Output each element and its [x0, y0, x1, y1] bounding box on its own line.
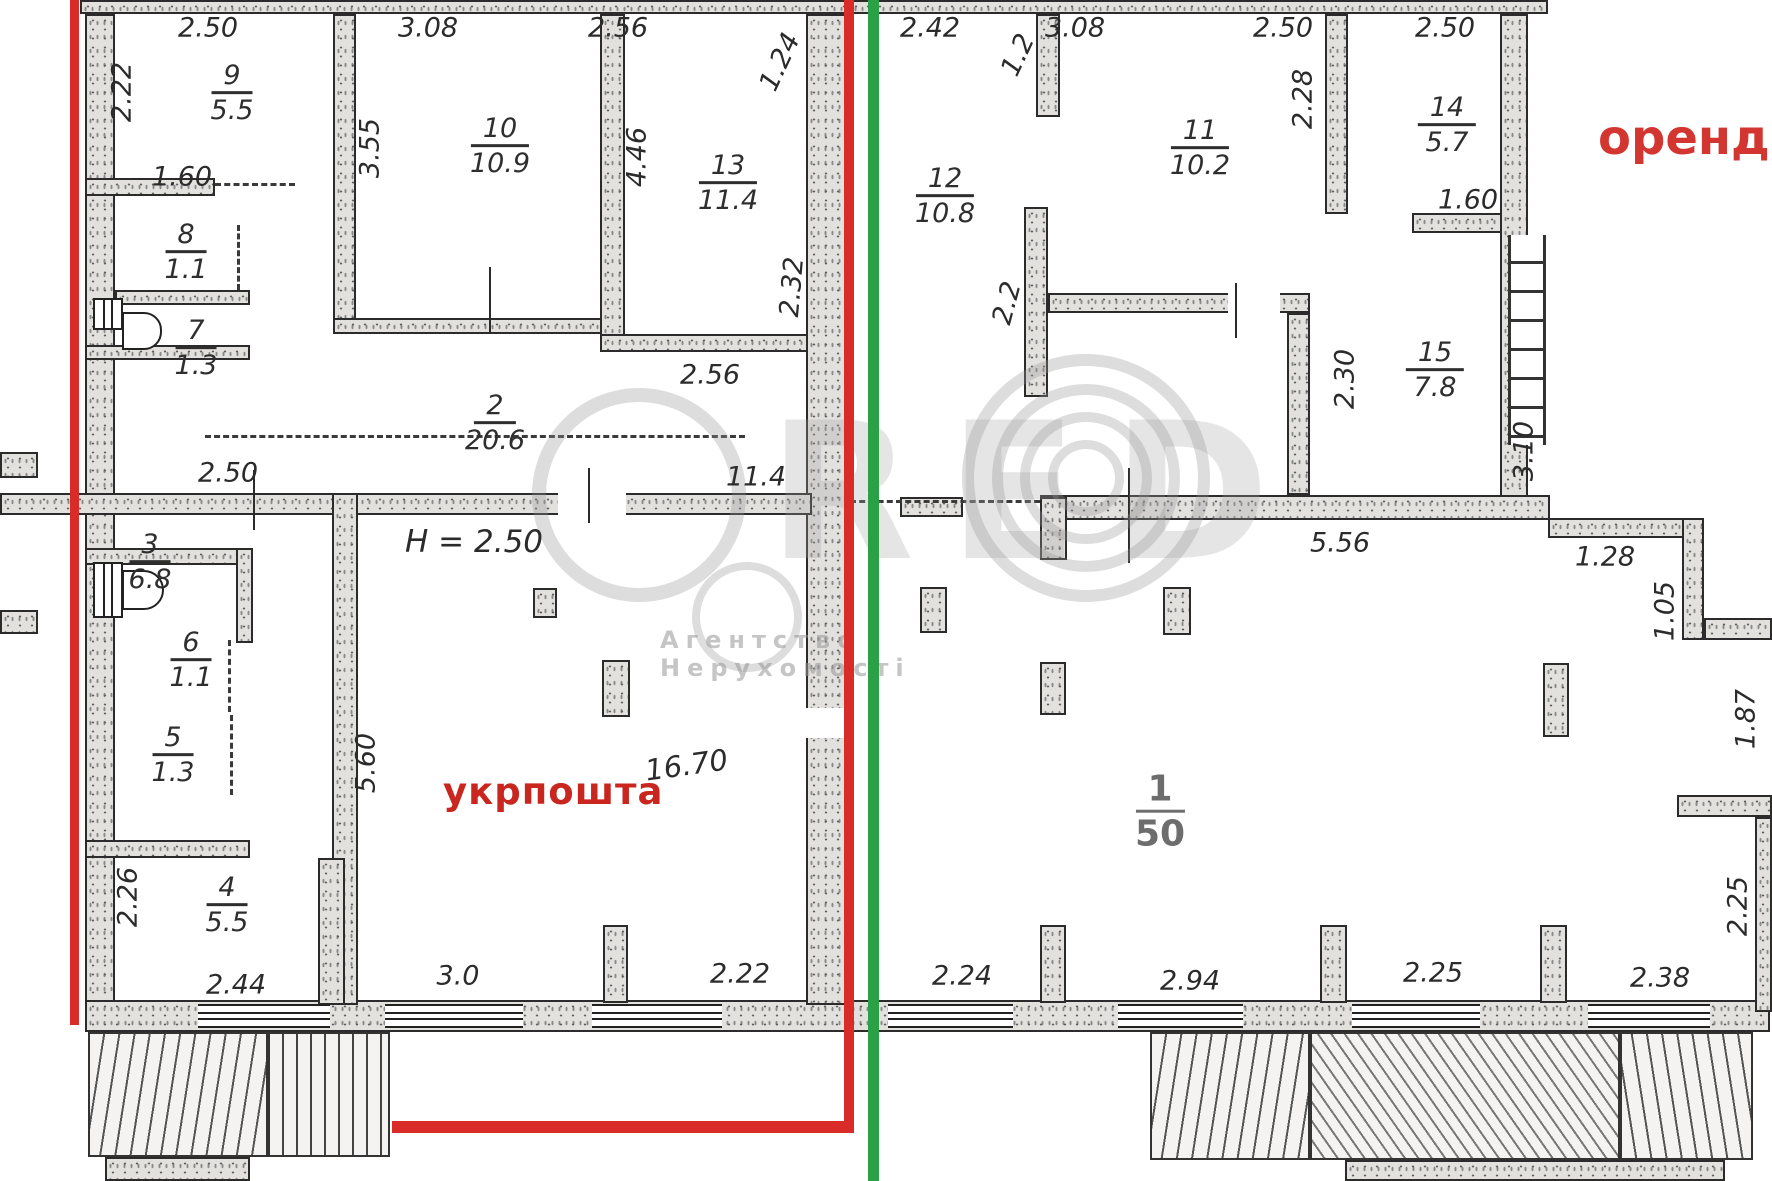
dimension-label: 1.24	[753, 28, 807, 96]
room-area: 10.9	[470, 148, 530, 179]
dashed-opening	[230, 715, 233, 795]
room-number: 5	[152, 724, 193, 756]
dimension-label: 5.56	[1310, 528, 1370, 559]
room-number: 11	[1171, 117, 1229, 149]
red-boundary-line-center	[844, 0, 854, 1133]
room-number: 7	[175, 317, 216, 349]
dimension-label: 2.42	[900, 13, 960, 44]
wall	[533, 588, 557, 618]
dimension-label: 2.2	[986, 278, 1027, 328]
wall	[1543, 663, 1569, 737]
watermark-o-ring	[992, 384, 1180, 572]
dashed-opening	[228, 640, 231, 712]
room-label: 45.5	[206, 872, 249, 938]
room-number: 15	[1406, 339, 1464, 371]
dimension-label: 2.32	[774, 256, 810, 319]
dashed-opening	[215, 183, 295, 186]
dimension-label: 3.55	[355, 118, 386, 178]
dimension-label: 5.60	[351, 733, 382, 793]
wall	[1040, 495, 1550, 520]
wall	[1287, 313, 1310, 495]
wall	[806, 14, 846, 1005]
window	[592, 1004, 722, 1028]
wall	[115, 290, 250, 305]
door-opening	[558, 493, 626, 515]
stairs-right-fan	[1150, 1032, 1310, 1160]
wall	[0, 452, 38, 478]
room-label: 61.1	[170, 627, 213, 693]
porch-ramp	[1310, 1032, 1620, 1160]
room-number: 10	[471, 115, 529, 147]
ukrposhta-label: укрпошта	[443, 770, 663, 813]
dimension-label: 2.50	[178, 13, 238, 44]
room-number: 1	[1135, 771, 1184, 813]
dimension-label: 11.4	[726, 462, 786, 493]
dimension-label: 2.56	[680, 360, 740, 391]
dimension-tick	[1235, 283, 1237, 338]
wall	[85, 345, 250, 360]
room-label: 36.8	[129, 529, 172, 595]
dimension-label: 2.38	[1630, 963, 1690, 994]
room-label: 1010.9	[470, 113, 530, 179]
room-number: 8	[165, 221, 206, 253]
room-number: 3	[129, 531, 170, 563]
stair-landing	[105, 1157, 250, 1181]
washbasin-icon	[93, 562, 123, 618]
toilet-icon	[122, 312, 162, 350]
stairs-left-fan	[88, 1032, 268, 1157]
room-label: 71.3	[175, 315, 218, 381]
room-area: 10.8	[915, 198, 975, 229]
dimension-label: 1.05	[1650, 581, 1681, 641]
wall	[0, 493, 812, 515]
door-opening	[806, 708, 846, 738]
room-number: 2	[474, 392, 515, 424]
dimension-tick	[588, 468, 590, 523]
wall	[603, 925, 628, 1003]
wall	[1040, 925, 1066, 1003]
dimension-tick	[489, 267, 491, 333]
room-number: 12	[916, 165, 974, 197]
wall	[236, 548, 253, 643]
wall	[920, 587, 947, 633]
wall	[1540, 925, 1567, 1003]
dimension-label: 1.60	[152, 162, 212, 193]
room-number: 14	[1418, 94, 1476, 126]
wall	[1682, 518, 1704, 640]
room-area: 5.5	[206, 907, 249, 938]
room-number: 9	[211, 62, 252, 94]
dimension-label: 2.50	[1253, 13, 1313, 44]
wall	[1024, 207, 1048, 397]
wall	[1325, 14, 1348, 214]
dimension-label: 2.44	[206, 970, 266, 1001]
room-label: 1311.4	[698, 150, 758, 216]
room-number: 13	[699, 152, 757, 184]
dimension-label: 3.0	[437, 961, 480, 992]
washbasin-icon	[93, 298, 123, 330]
dimension-label: 2.94	[1160, 966, 1220, 997]
dimension-label: 2.25	[1723, 876, 1754, 936]
room-label: 145.7	[1418, 92, 1476, 158]
room-area: 11.4	[698, 185, 758, 216]
wall	[602, 660, 630, 717]
room-area: 6.8	[129, 564, 172, 595]
wall	[85, 14, 115, 1020]
floor-plan: RED Агентство Нерухомості укрпошта оренд…	[0, 0, 1772, 1181]
wall	[333, 14, 356, 334]
green-divider-line	[868, 0, 879, 1181]
wall	[600, 334, 812, 352]
room-label: 95.5	[211, 60, 254, 126]
window	[1352, 1004, 1480, 1028]
dimension-label: 2.50	[198, 458, 258, 489]
red-boundary-line-bottom	[392, 1121, 854, 1133]
wall	[80, 0, 1548, 14]
room-area: 1.1	[170, 662, 213, 693]
room-label: 220.6	[465, 390, 525, 456]
dimension-label: 1.60	[1438, 185, 1498, 216]
window	[1588, 1004, 1710, 1028]
window	[385, 1004, 523, 1028]
window	[198, 1004, 330, 1028]
wall	[1163, 587, 1191, 635]
dimension-label: 2.30	[1330, 349, 1361, 409]
wall	[1040, 662, 1066, 715]
room-area: 50	[1135, 813, 1185, 854]
room-area: 20.6	[465, 425, 525, 456]
room-label: 1210.8	[915, 163, 975, 229]
wall	[1677, 795, 1772, 817]
dimension-label: 3.08	[398, 13, 458, 44]
room-label: 51.3	[152, 722, 195, 788]
ceiling-height-note: H = 2.50	[405, 524, 543, 560]
dimension-label: 2.24	[932, 961, 992, 992]
room-area: 1.3	[152, 757, 195, 788]
stairs-left-steps	[268, 1032, 390, 1157]
red-boundary-line-left	[70, 0, 79, 1025]
room-area: 7.8	[1406, 372, 1464, 403]
dimension-label: 3.10	[1509, 421, 1540, 481]
watermark-small-ring	[692, 562, 802, 672]
wall	[1704, 618, 1772, 640]
dimension-label: 2.25	[1403, 958, 1463, 989]
stair-landing	[1345, 1160, 1725, 1181]
dimension-label: 2.26	[113, 867, 144, 927]
dimension-label: 2.28	[1288, 69, 1319, 129]
exterior-ladder	[1508, 235, 1546, 445]
dimension-label: 2.50	[1415, 13, 1475, 44]
wall	[318, 858, 345, 1005]
dimension-label: 2.22	[710, 959, 770, 990]
room-label: 81.1	[165, 219, 208, 285]
room-area: 1.3	[175, 350, 218, 381]
dimension-label: 1.87	[1731, 689, 1762, 749]
dimension-label: 1.2	[995, 29, 1041, 81]
room-area: 1.1	[165, 254, 208, 285]
room-label: 157.8	[1406, 337, 1464, 403]
room-number: 4	[206, 874, 247, 906]
dashed-opening	[237, 225, 240, 290]
room-area: 5.7	[1418, 127, 1476, 158]
wall	[1320, 925, 1347, 1003]
room-label: 1110.2	[1170, 115, 1230, 181]
dimension-label: 2.56	[588, 13, 648, 44]
dimension-label: 3.08	[1045, 13, 1105, 44]
dimension-label: 4.46	[622, 127, 653, 187]
wall	[1548, 518, 1685, 538]
room-label: 150	[1135, 769, 1185, 854]
stairs-right-fan	[1620, 1032, 1753, 1160]
wall	[333, 318, 625, 334]
window	[888, 1004, 1013, 1028]
wall	[1040, 497, 1067, 560]
orenda-label: оренда	[1598, 110, 1772, 166]
room-number: 6	[170, 629, 211, 661]
window	[1118, 1004, 1243, 1028]
wall	[1755, 817, 1772, 1012]
watermark-o-ring	[962, 354, 1210, 602]
dimension-tick	[1128, 468, 1130, 563]
wall	[85, 840, 250, 858]
room-area: 5.5	[211, 95, 254, 126]
dimension-label: 1.28	[1575, 542, 1635, 573]
room-area: 10.2	[1170, 150, 1230, 181]
dimension-label: 2.22	[107, 62, 138, 122]
wall	[0, 610, 38, 634]
